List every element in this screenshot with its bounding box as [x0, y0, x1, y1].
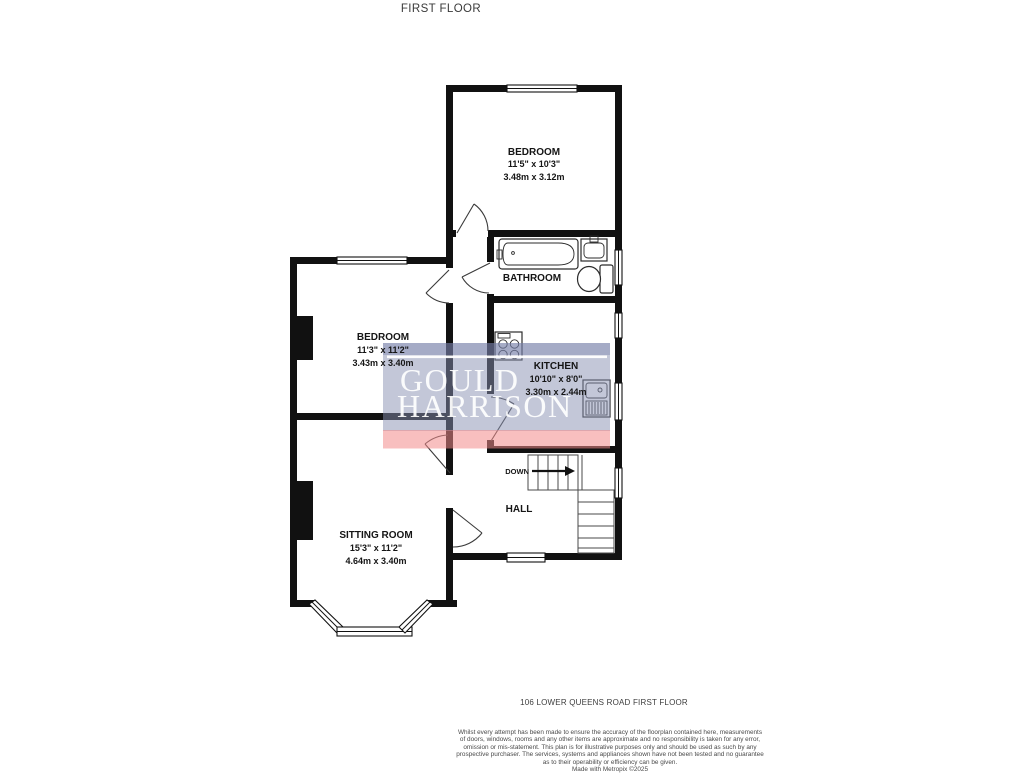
- room-label-kitchen: KITCHEN 10'10" x 8'0" 3.30m x 2.44m: [525, 361, 586, 397]
- room-name: BEDROOM: [508, 147, 560, 158]
- door-arc: [457, 204, 488, 233]
- room-metric-dims: 3.43m x 3.40m: [352, 358, 413, 368]
- disclaimer-line: of doors, windows, rooms and any other i…: [440, 736, 780, 743]
- room-metric-dims: 4.64m x 3.40m: [345, 556, 406, 566]
- window: [615, 313, 622, 338]
- credit-line: Made with Metropix ©2025: [440, 766, 780, 773]
- room-label-bathroom: BATHROOM: [503, 273, 561, 284]
- toilet-icon: [578, 265, 614, 293]
- bay-window: [309, 600, 433, 636]
- disclaimer-line: as to their operability or efficiency ca…: [440, 759, 780, 766]
- footer-address: 106 LOWER QUEENS ROAD FIRST FLOOR: [520, 698, 688, 707]
- stairs-direction-label: DOWN: [505, 467, 529, 476]
- room-name: HALL: [506, 504, 533, 515]
- window: [615, 383, 622, 420]
- room-label-hall: HALL: [506, 504, 533, 515]
- room-label-bedroom-middle: BEDROOM 11'3" x 11'2" 3.43m x 3.40m: [352, 332, 413, 368]
- chimney-breast: [297, 481, 313, 540]
- room-name: SITTING ROOM: [339, 530, 412, 541]
- window: [337, 257, 407, 264]
- room-metric-dims: 3.30m x 2.44m: [525, 387, 586, 397]
- room-label-bedroom-top: BEDROOM 11'5" x 10'3" 3.48m x 3.12m: [503, 147, 564, 182]
- window: [615, 468, 622, 498]
- disclaimer-line: prospective purchaser. The services, sys…: [440, 751, 780, 758]
- room-imperial-dims: 15'3" x 11'2": [350, 543, 402, 553]
- window: [615, 250, 622, 285]
- bathtub-icon: [497, 239, 578, 269]
- room-label-sitting-room: SITTING ROOM 15'3" x 11'2" 4.64m x 3.40m: [339, 530, 412, 566]
- room-imperial-dims: 10'10" x 8'0": [530, 374, 583, 384]
- room-imperial-dims: 11'5" x 10'3": [508, 159, 560, 169]
- door-arc: [426, 270, 449, 303]
- door-arc: [462, 263, 490, 293]
- floorplan-canvas: GOULD HARRISON BEDROOM 11'5" x 10'3" 3.4…: [0, 0, 1024, 768]
- window: [507, 85, 577, 92]
- basin-icon: [581, 236, 607, 261]
- staircase: [528, 455, 614, 553]
- chimney-breast: [297, 316, 313, 360]
- disclaimer-line: Whilst every attempt has been made to en…: [440, 729, 780, 736]
- room-name: BEDROOM: [357, 332, 409, 343]
- room-metric-dims: 3.48m x 3.12m: [503, 172, 564, 182]
- room-name: BATHROOM: [503, 273, 561, 284]
- room-imperial-dims: 11'3" x 11'2": [357, 345, 409, 355]
- disclaimer-line: omission or mis-statement. This plan is …: [440, 744, 780, 751]
- room-name: KITCHEN: [534, 361, 578, 372]
- footer-disclaimer: Whilst every attempt has been made to en…: [440, 729, 780, 773]
- window: [507, 553, 545, 562]
- door-arc: [453, 510, 482, 547]
